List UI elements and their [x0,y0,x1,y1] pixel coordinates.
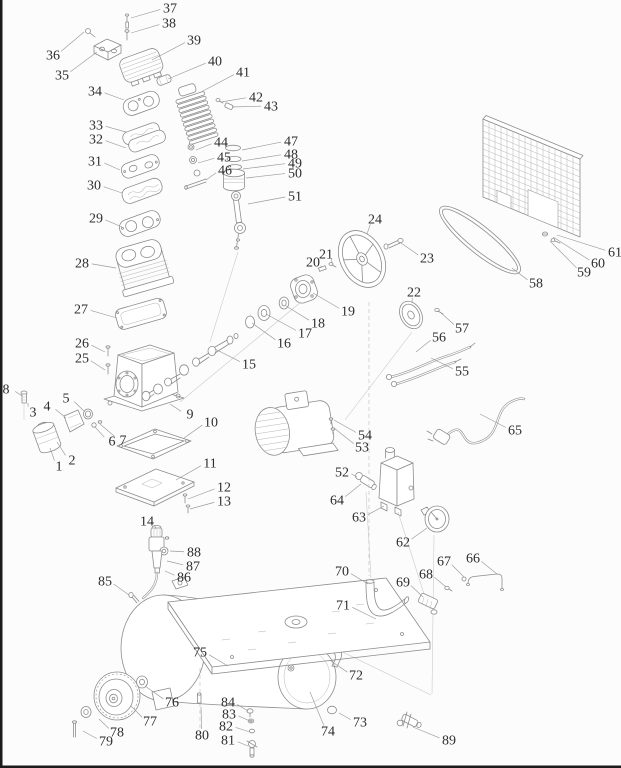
stud-26 [106,346,110,356]
fitting-43 [224,102,233,109]
part-label-2: 2 [69,454,76,469]
leader-line-29 [105,220,122,227]
screw-42 [216,99,223,104]
valve-parts-44-45 [188,144,197,164]
part-label-28: 28 [75,257,89,272]
part-label-66: 66 [466,552,480,567]
pressure-gauge-62 [421,506,449,532]
leader-line-61 [557,235,605,250]
part-label-29: 29 [89,212,103,227]
leader-line-89 [413,727,440,738]
head-gasket-29 [117,208,162,238]
screw-38 [125,30,129,40]
part-label-6: 6 [109,435,116,450]
leader-line-13 [190,502,214,509]
leader-line-16 [252,323,276,340]
part-label-75: 75 [193,646,207,661]
washer-76 [137,676,148,688]
regulator-14 [143,526,169,599]
part-label-34: 34 [88,85,102,100]
leader-line-41 [201,75,234,92]
leader-line-48 [242,155,281,161]
v-belt-58 [432,197,528,282]
filter-housing-4 [64,410,84,432]
leader-line-62 [412,528,427,539]
base-gasket-10 [117,429,191,459]
part-label-74: 74 [321,725,335,740]
leader-line-80 [201,707,202,729]
part-label-21: 21 [319,248,333,263]
part-label-55: 55 [455,365,469,380]
filter-can-1-2 [31,419,62,455]
leader-line-88 [170,551,184,552]
leader-line-11 [176,466,201,480]
leader-line-5 [74,402,84,411]
leader-line-82 [236,727,250,732]
part-label-67: 67 [437,555,451,570]
union-fitting-69 [418,593,439,615]
leader-line-18 [286,306,309,320]
part-label-20: 20 [306,256,320,271]
axle-bolt-23 [384,239,403,250]
part-label-70: 70 [335,565,349,580]
part-label-26: 26 [75,337,89,352]
leader-line-49 [243,164,285,169]
part-label-72: 72 [349,669,363,684]
leader-line-51 [248,197,285,204]
part-label-41: 41 [236,66,250,81]
part-label-50: 50 [288,167,302,182]
ball-67 [462,577,466,581]
part-label-8: 8 [3,383,10,398]
clip-36 [86,29,96,38]
leader-line-19 [313,293,339,308]
part-label-81: 81 [221,734,235,749]
leader-line-38 [131,25,159,33]
base-plate-11 [116,469,194,506]
part-label-9: 9 [187,408,194,423]
leader-line-37 [131,9,160,18]
o-ring-5 [84,409,93,419]
leader-line-56 [416,340,431,352]
leader-line-32 [106,141,126,148]
part-label-65: 65 [508,424,522,439]
leader-line-23 [401,243,418,255]
part-label-27: 27 [74,303,88,318]
part-label-84: 84 [221,696,235,711]
leader-line-17 [266,314,296,330]
part-label-24: 24 [368,213,382,228]
part-label-88: 88 [187,546,201,561]
part-label-19: 19 [341,305,355,320]
part-label-56: 56 [432,331,446,346]
wheel-77-78 [94,672,140,720]
leader-line-27 [91,310,117,318]
leader-line-66 [481,561,497,574]
valve-plate-34 [121,89,162,118]
screw-13 [186,505,190,513]
motor-53 [250,387,338,463]
leader-line-34 [105,93,124,100]
leader-line-40 [168,63,206,79]
leader-line-83 [238,716,250,721]
leader-line-12 [188,489,215,499]
part-label-15: 15 [242,358,256,373]
part-label-16: 16 [277,337,291,352]
screw-12 [183,494,187,503]
washer-17 [258,306,270,321]
leader-line-4 [55,409,66,418]
leader-line-87 [167,561,183,565]
leader-line-86 [165,571,174,575]
leader-line-47 [242,142,281,150]
wrist-pin-46 [185,170,206,189]
check-valve-52-64 [356,473,378,491]
part-label-42: 42 [249,91,263,106]
leader-line-64 [345,484,361,497]
part-label-38: 38 [162,17,176,32]
leader-line-9 [170,404,181,411]
leader-line-73 [339,713,351,720]
leader-line-28 [92,264,116,268]
leader-line-78 [99,719,109,728]
connecting-rod-51 [232,192,246,250]
leader-line-50 [246,174,285,178]
part-label-58: 58 [529,277,543,292]
bolt-8 [21,391,27,420]
part-label-52: 52 [335,466,349,481]
part-label-11: 11 [203,457,216,472]
part-label-79: 79 [99,735,113,750]
exploded-parts-diagram: 1234567891011121314151617181920212223242… [0,0,621,768]
valve-plates-33-32 [121,120,167,155]
part-label-4: 4 [44,400,51,415]
part-label-36: 36 [46,49,60,64]
part-label-62: 62 [396,536,410,551]
leader-line-85 [114,584,129,595]
part-label-5: 5 [63,392,70,407]
part-label-77: 77 [143,715,157,730]
belt-guard-grille [483,116,583,238]
leader-line-57 [440,312,454,324]
part-label-39: 39 [187,34,201,49]
washer-78 [81,707,91,718]
axle-pin-79 [73,721,77,737]
leader-line-79 [83,731,97,739]
leader-line-46 [206,173,216,180]
part-label-44: 44 [214,136,228,151]
ring-73 [328,706,337,714]
leader-line-67 [452,565,464,577]
part-label-68: 68 [419,568,433,583]
leader-line-69 [411,586,423,597]
pressure-switch-63 [379,448,414,517]
part-label-18: 18 [311,317,325,332]
part-label-17: 17 [298,327,312,342]
part-label-37: 37 [163,2,177,17]
part-label-87: 87 [186,560,200,575]
bolt-85 [129,592,139,603]
part-label-25: 25 [75,352,89,367]
part-label-12: 12 [217,481,231,496]
stud-25 [106,364,110,374]
leader-line-44 [196,144,211,150]
bearing-cover-19 [288,273,319,306]
part-label-13: 13 [217,495,231,510]
part-label-89: 89 [442,734,456,749]
part-label-51: 51 [288,190,302,205]
part-label-43: 43 [264,100,278,115]
leader-line-65 [480,414,506,428]
leader-line-42 [221,98,246,102]
cylinder-28 [111,237,174,297]
leader-line-59 [550,241,577,268]
part-label-35: 35 [55,69,69,84]
leader-line-43 [232,106,261,107]
part-label-23: 23 [420,252,434,267]
part-label-59: 59 [577,266,591,281]
leader-line-68 [434,577,446,587]
flywheel-24 [329,222,395,295]
leader-line-35 [70,52,97,72]
part-label-73: 73 [353,716,367,731]
breather-box-35 [94,39,121,60]
leader-line-63 [368,506,384,515]
part-label-80: 80 [195,729,209,744]
part-label-7: 7 [120,434,127,449]
part-label-32: 32 [89,133,103,148]
leader-line-36 [61,32,84,51]
diagram-canvas: 1234567891011121314151617181920212223242… [0,0,621,768]
part-label-85: 85 [98,575,112,590]
part-label-54: 54 [358,429,372,444]
leader-line-53 [334,428,354,444]
leader-line-31 [104,163,120,170]
screw-37 [125,14,128,28]
aftercooler-41 [172,81,218,145]
part-label-22: 22 [407,286,421,301]
leader-line-10 [184,425,202,438]
valve-plate-30 [120,176,164,205]
leader-line-25 [91,361,105,370]
part-label-31: 31 [88,155,102,170]
part-label-40: 40 [208,55,222,70]
part-label-71: 71 [336,599,350,614]
part-label-30: 30 [87,179,101,194]
leader-line-60 [553,237,589,260]
part-label-64: 64 [330,494,344,509]
leader-line-81 [238,742,248,746]
safety-valve-89 [397,712,422,728]
part-label-3: 3 [30,406,37,421]
part-label-10: 10 [204,416,218,431]
leader-line-26 [91,345,105,352]
part-label-33: 33 [89,119,103,134]
part-label-69: 69 [396,576,410,591]
unloader-tube-66 [467,574,504,591]
part-label-60: 60 [591,257,605,272]
leader-line-45 [198,158,214,163]
pulley-22 [395,297,427,332]
leader-line-2 [57,442,66,455]
part-label-61: 61 [608,246,621,261]
setscrew-21 [329,263,336,267]
leader-line-6 [95,427,104,437]
part-label-46: 46 [218,164,232,179]
part-label-76: 76 [165,696,179,711]
guard-screws-59-60-61 [542,232,560,243]
cylinder-gasket-27 [114,297,168,331]
plate-31 [119,153,161,180]
leader-line-30 [104,187,122,193]
part-label-1: 1 [56,460,63,475]
washer-16 [246,316,255,328]
leader-line-33 [106,126,126,132]
part-label-57: 57 [455,322,469,337]
part-label-63: 63 [352,511,366,526]
part-label-14: 14 [140,515,154,530]
